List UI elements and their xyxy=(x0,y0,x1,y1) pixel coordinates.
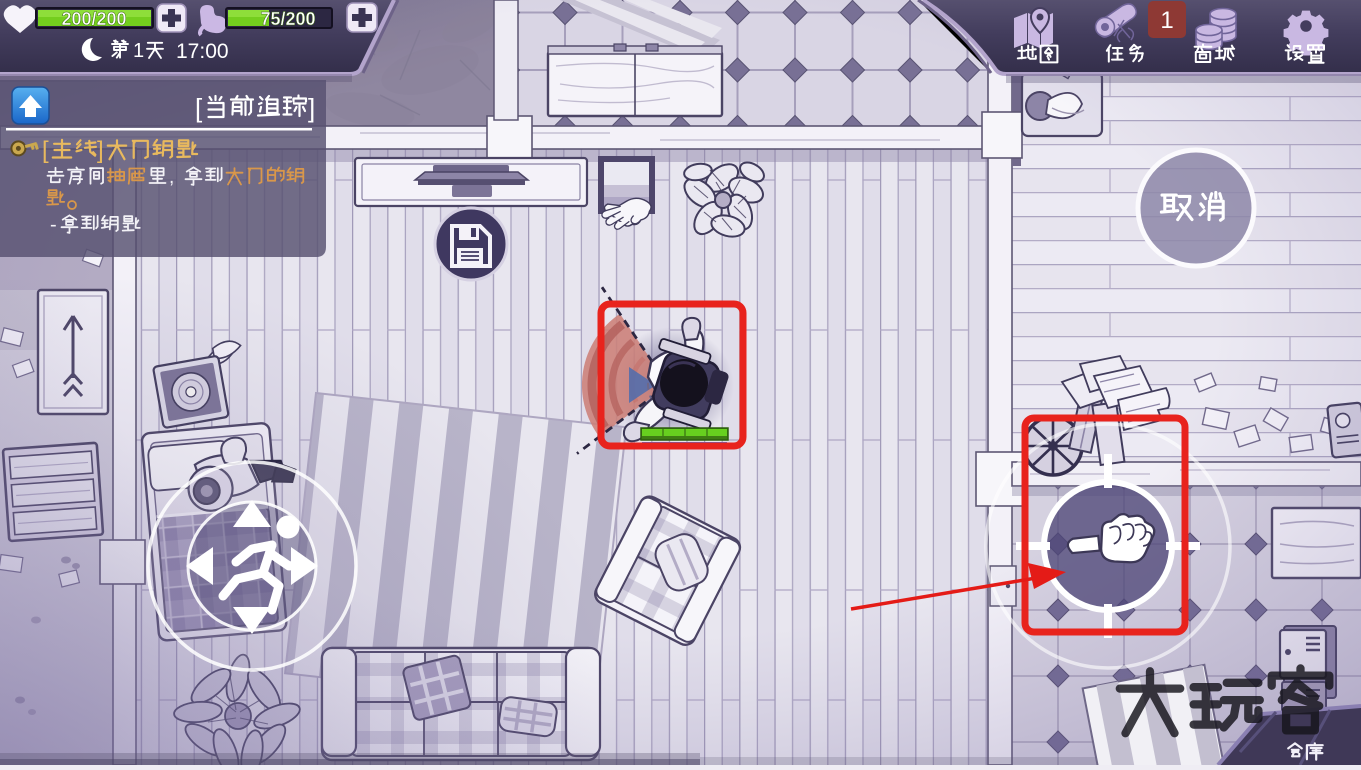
svg-text:1: 1 xyxy=(1160,7,1173,34)
svg-text:200/200: 200/200 xyxy=(61,9,126,29)
svg-text:1: 1 xyxy=(133,40,144,62)
svg-text:]: ] xyxy=(308,93,315,123)
svg-text:[: [ xyxy=(195,93,203,123)
svg-text:,: , xyxy=(169,167,174,188)
svg-text:17:00: 17:00 xyxy=(176,40,229,63)
svg-text:]: ] xyxy=(97,137,104,164)
svg-text:[: [ xyxy=(42,137,49,164)
svg-text:75/200: 75/200 xyxy=(260,9,315,29)
svg-text:-: - xyxy=(50,214,57,236)
